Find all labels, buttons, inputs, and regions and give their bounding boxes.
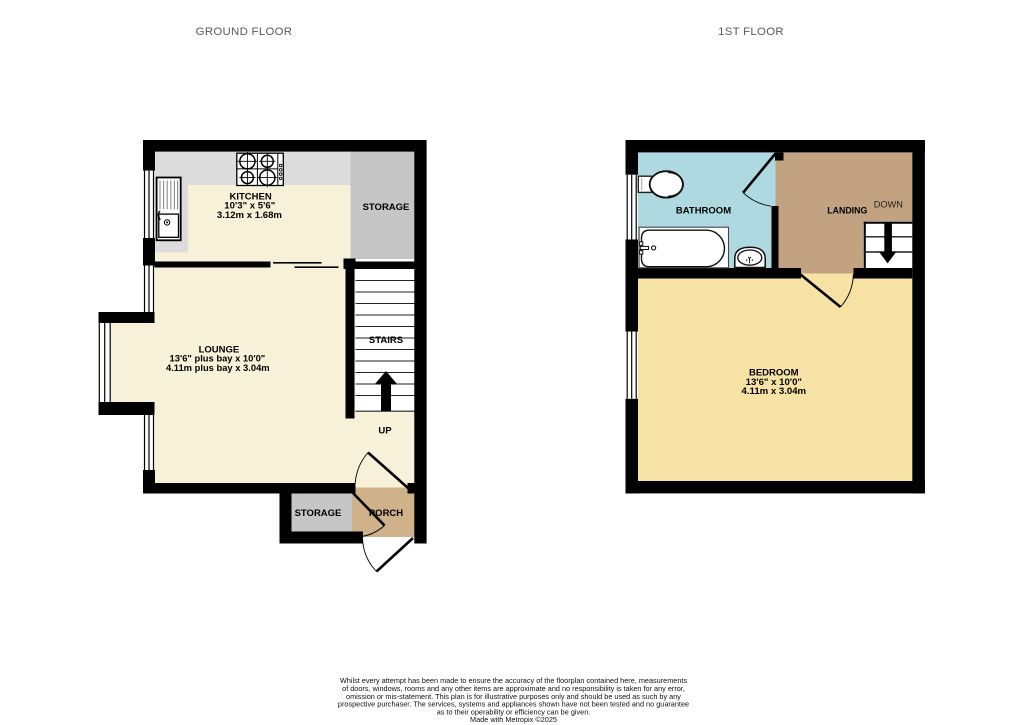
svg-text:4.11m x 3.04m: 4.11m x 3.04m — [742, 386, 807, 397]
svg-text:DOWN: DOWN — [874, 200, 903, 210]
svg-text:4.11m plus bay x 3.04m: 4.11m plus bay x 3.04m — [166, 362, 270, 373]
svg-text:Made with Metropix ©2025: Made with Metropix ©2025 — [470, 715, 557, 724]
svg-text:PORCH: PORCH — [369, 508, 403, 519]
svg-text:GROUND FLOOR: GROUND FLOOR — [196, 26, 293, 38]
svg-text:BATHROOM: BATHROOM — [676, 206, 731, 217]
svg-text:STORAGE: STORAGE — [363, 202, 410, 213]
svg-text:LANDING: LANDING — [827, 206, 867, 216]
svg-text:STORAGE: STORAGE — [295, 508, 342, 519]
svg-text:STAIRS: STAIRS — [369, 335, 403, 346]
svg-text:3.12m x 1.68m: 3.12m x 1.68m — [217, 210, 282, 221]
svg-text:1ST FLOOR: 1ST FLOOR — [718, 26, 784, 38]
svg-text:UP: UP — [378, 426, 392, 437]
